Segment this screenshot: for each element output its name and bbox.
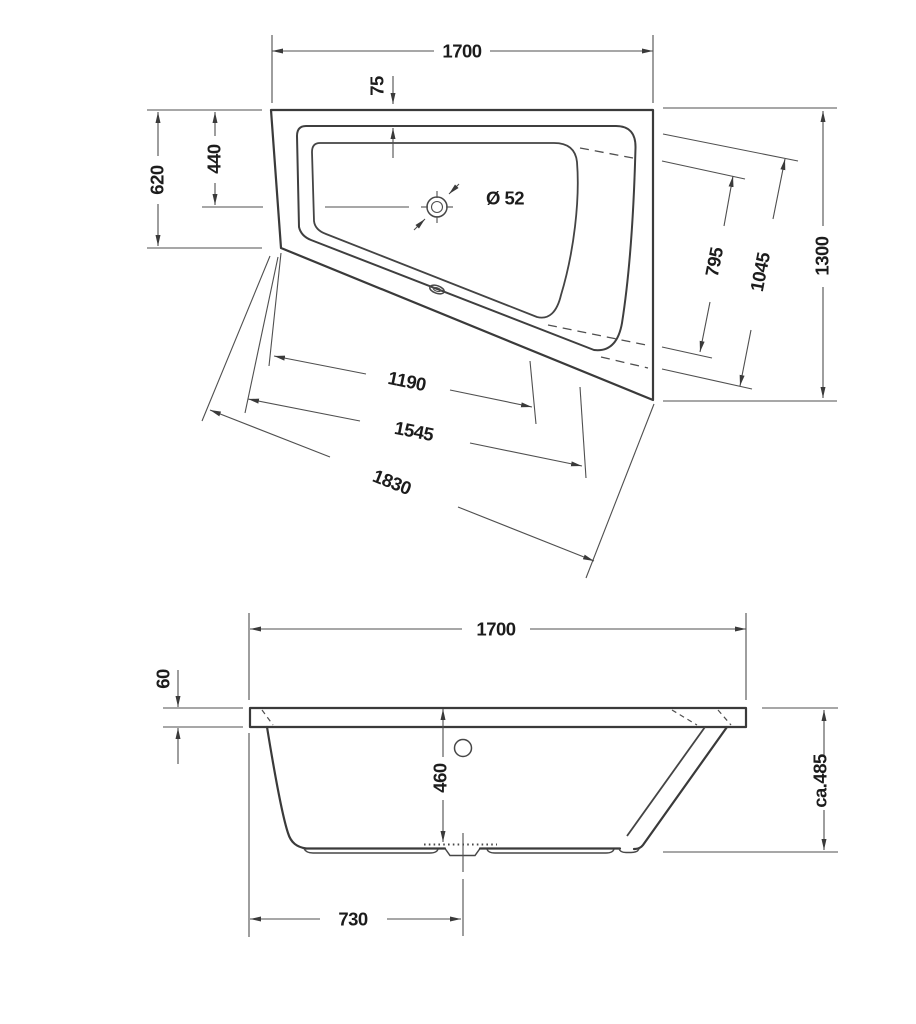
tub-rim-side: [250, 708, 746, 727]
dim-rim-thickness: 60: [153, 669, 244, 764]
dim-seat-edge-inner: 795: [662, 161, 745, 358]
dim-drain-position: 730: [250, 909, 461, 930]
dim-label-795: 795: [701, 245, 727, 278]
dim-label-1545: 1545: [393, 417, 436, 445]
drain-circle-side: [455, 740, 472, 757]
top-view: 1700 75 620 440 Ø 52: [147, 35, 838, 578]
dim-label-1300: 1300: [812, 236, 833, 275]
dim-label-width-top: 1700: [442, 41, 481, 62]
dim-label-drain-diameter: Ø 52: [486, 188, 524, 209]
dim-label-730: 730: [338, 909, 368, 930]
dim-inner-depth: 460: [430, 709, 451, 842]
dim-label-460: 460: [430, 763, 451, 793]
dim-drain-from-back: 440: [202, 112, 263, 207]
tub-body-side: [267, 727, 727, 856]
side-view: 1700 60 460 ca.485 730: [153, 613, 839, 937]
tub-outer-outline-top: [271, 110, 653, 400]
dim-left-side-total: 620: [147, 110, 263, 248]
dim-label-1045: 1045: [746, 251, 774, 294]
dim-label-620: 620: [147, 165, 168, 195]
dim-label-ca485: ca.485: [810, 754, 831, 808]
dim-label-440: 440: [204, 144, 225, 174]
dim-label-1830: 1830: [370, 465, 414, 499]
technical-drawing: 1700 75 620 440 Ø 52: [0, 0, 916, 1024]
dim-top-width: 1700: [272, 35, 653, 103]
dim-label-width-side: 1700: [476, 619, 515, 640]
drawing-canvas: 1700 75 620 440 Ø 52: [0, 0, 916, 1024]
dim-label-1190: 1190: [386, 367, 428, 395]
dim-label-60: 60: [153, 669, 174, 689]
dim-label-rim-offset: 75: [367, 76, 388, 96]
dim-seat-edge-outer: 1045: [662, 134, 798, 389]
